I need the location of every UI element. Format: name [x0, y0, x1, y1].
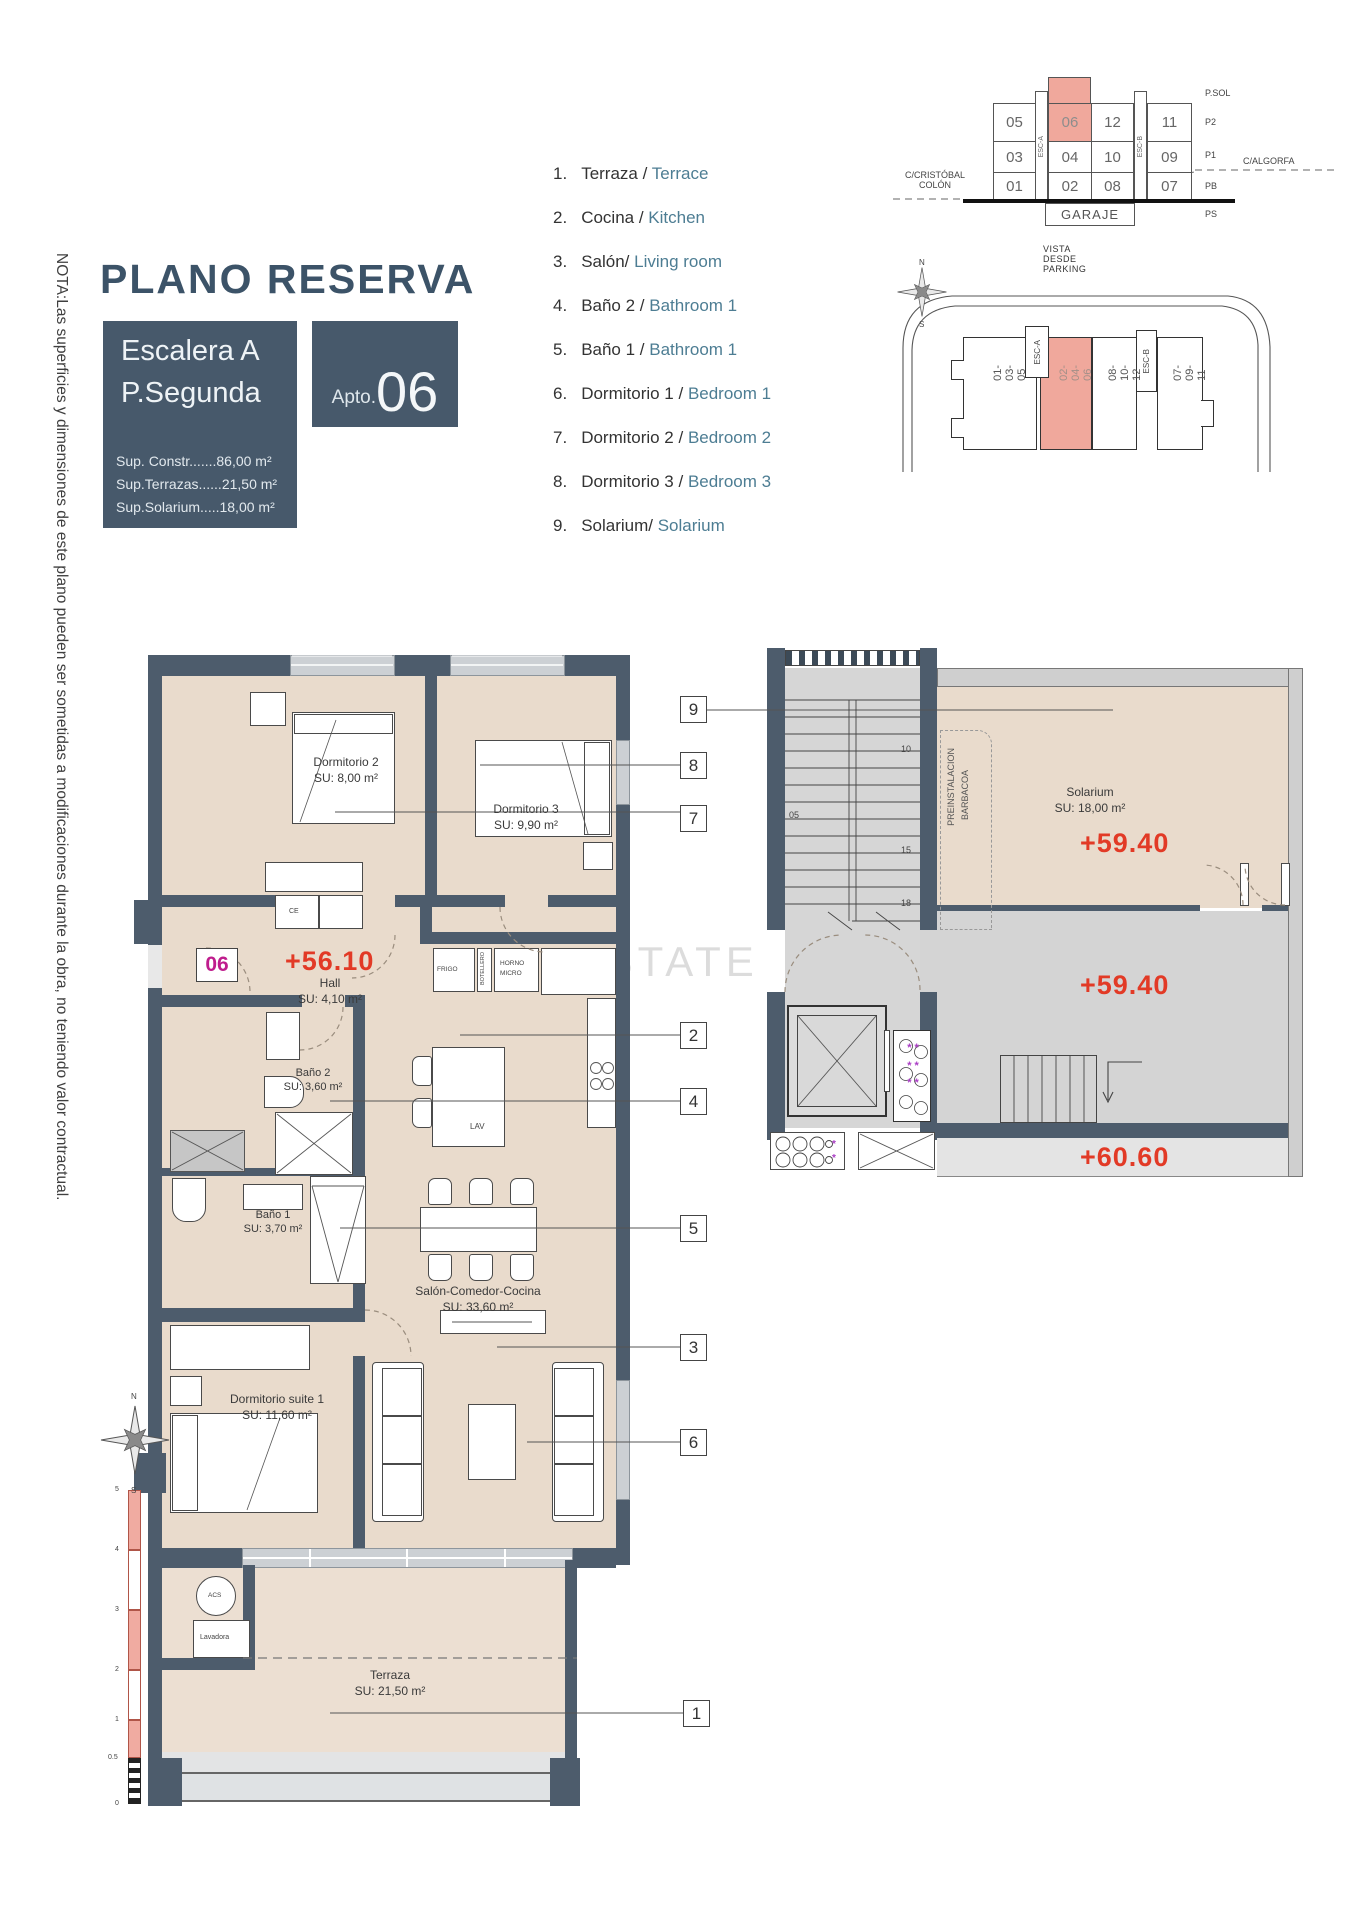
scale-05: 0.5: [108, 1754, 118, 1761]
unit-08: 08: [1091, 172, 1134, 201]
legend-es: Dormitorio 1 /: [581, 384, 688, 403]
window-mullions: [243, 656, 572, 1567]
scale-3: 3: [115, 1606, 119, 1613]
compass-margin: [101, 1406, 169, 1474]
level-upper: +60.60: [1080, 1142, 1169, 1173]
legend-item-9: 9.Solarium/ Solarium: [553, 516, 725, 536]
room-name: Dormitorio 2: [313, 755, 378, 769]
street-cristobal: C/CRISTÓBAL COLÓN: [895, 170, 975, 190]
legend-num: 7.: [553, 428, 567, 447]
level-main: +56.10: [285, 946, 374, 977]
garaje-cell: GARAJE: [1045, 203, 1135, 226]
lavadora-label: Lavadora: [200, 1634, 229, 1641]
scale-5: 5: [115, 1486, 119, 1493]
legend-num: 1.: [553, 164, 567, 183]
label-bano2: Baño 2 SU: 3,60 m²: [268, 1066, 358, 1095]
legend-item-2: 2.Cocina / Kitchen: [553, 208, 705, 228]
legend-num: 9.: [553, 516, 567, 535]
legend-num: 8.: [553, 472, 567, 491]
legend-item-4: 4.Baño 2 / Bathroom 1: [553, 296, 737, 316]
scale-4: 4: [115, 1546, 119, 1553]
section-esc-b: ESC-B: [1134, 91, 1147, 203]
apartment-badge: 06: [196, 948, 238, 982]
legend-es: Salón/: [581, 252, 634, 271]
scale-2: 2: [115, 1666, 119, 1673]
legend-num: 2.: [553, 208, 567, 227]
legend-es: Terraza /: [581, 164, 652, 183]
esc-a-label: ESC-A: [1038, 136, 1045, 157]
room-name: Baño 2: [296, 1067, 331, 1079]
scale-seg: [128, 1670, 141, 1720]
label-solarium: Solarium SU: 18,00 m²: [1030, 785, 1150, 816]
level-p2: P2: [1205, 117, 1216, 127]
unit-01: 01: [993, 172, 1036, 201]
level-p1: P1: [1205, 150, 1216, 160]
legend-en: Bathroom 1: [649, 296, 737, 315]
room-name: Dormitorio 3: [493, 802, 558, 816]
room-area: SU: 8,00 m²: [314, 771, 378, 785]
section-esc-a: ESC-A: [1035, 91, 1048, 203]
ce-label: CE: [289, 908, 299, 915]
room-name: Dormitorio suite 1: [230, 1392, 324, 1406]
site-label-020406: 02-04-06: [1058, 365, 1094, 381]
room-area: SU: 9,90 m²: [494, 818, 558, 832]
room-area: SU: 3,70 m²: [244, 1223, 303, 1235]
street-algorfa: C/ALGORFA: [1243, 156, 1295, 166]
room-name: Hall: [320, 976, 341, 990]
level-solarium: +59.40: [1080, 828, 1169, 859]
label-dorm3: Dormitorio 3 SU: 9,90 m²: [466, 802, 586, 833]
callout-3: 3: [680, 1334, 707, 1361]
callout-2: 2: [680, 1022, 707, 1049]
site-label-070911: 07-09-11: [1172, 365, 1208, 381]
door-arcs: [206, 865, 1285, 1356]
callout-6: 6: [680, 1429, 707, 1456]
legend-es: Cocina /: [581, 208, 648, 227]
level-psol: P.SOL: [1205, 88, 1230, 98]
legend-item-8: 8.Dormitorio 3 / Bedroom 3: [553, 472, 771, 492]
stair-num-10: 10: [901, 744, 911, 754]
site-esc-a-label: ESC-A: [1033, 340, 1042, 364]
legend-en: Bathroom 1: [649, 340, 737, 359]
legend-item-6: 6.Dormitorio 1 / Bedroom 1: [553, 384, 771, 404]
label-suite: Dormitorio suite 1 SU: 11,60 m²: [207, 1392, 347, 1423]
legend-es: Baño 2 /: [581, 296, 649, 315]
site-block-010305-notch: [951, 360, 964, 380]
scale-seg: [128, 1550, 141, 1610]
closet-triangle-lines: [312, 1186, 364, 1282]
surface-terrazas: Sup.Terrazas......21,50 m²: [116, 476, 277, 492]
apto-block: Apto. 06: [312, 321, 458, 427]
scale-seg: [128, 1720, 141, 1758]
legend-es: Baño 1 /: [581, 340, 649, 359]
callout-9: 9: [680, 696, 707, 723]
unit-06: 06: [1048, 103, 1092, 142]
site-esc-a: ESC-A: [1025, 326, 1049, 378]
room-area: SU: 4,10 m²: [298, 992, 362, 1006]
callout-7: 7: [680, 805, 707, 832]
stair-treads: [785, 700, 920, 930]
escalera-label: Escalera A: [121, 335, 260, 368]
callout-1: 1: [683, 1700, 710, 1727]
legend-es: Dormitorio 3 /: [581, 472, 688, 491]
installation-stars: * ** ** *: [896, 1040, 930, 1093]
legend-es: Dormitorio 2 /: [581, 428, 688, 447]
site-block-081012: [1092, 337, 1137, 450]
acs-label: ACS: [208, 1592, 221, 1599]
legend-en: Bedroom 3: [688, 472, 771, 491]
unit-11: 11: [1147, 103, 1192, 142]
section-psol-highlight: [1048, 77, 1091, 104]
horno-label1: HORNO: [500, 960, 524, 967]
level-pb: PB: [1205, 181, 1217, 191]
unit-04: 04: [1048, 141, 1092, 173]
callout-lines: [330, 710, 1113, 1713]
apto-prefix: Apto.: [332, 387, 376, 409]
room-name: Terraza: [370, 1668, 410, 1682]
stair-num-05: 05: [789, 810, 799, 820]
margin-note: NOTA:Las superficies y dimensiones de es…: [52, 253, 70, 1343]
label-dorm2: Dormitorio 2 SU: 8,00 m²: [286, 755, 406, 786]
scale-0: 0: [115, 1800, 119, 1807]
compass-margin-s: S: [131, 1486, 136, 1495]
street-cristobal-l1: C/CRISTÓBAL: [905, 170, 965, 180]
street-cristobal-l2: COLÓN: [919, 180, 951, 190]
unit-12: 12: [1091, 103, 1134, 142]
room-name: Baño 1: [256, 1209, 291, 1221]
esc-b-label: ESC-B: [1137, 136, 1144, 157]
label-hall: Hall SU: 4,10 m²: [270, 976, 390, 1007]
planta-label: P.Segunda: [121, 377, 261, 410]
site-block-070911-notch: [1201, 400, 1214, 427]
label-bano1: Baño 1 SU: 3,70 m²: [230, 1208, 316, 1237]
room-name: Salón-Comedor-Cocina: [415, 1284, 540, 1298]
barbacoa-label1: PREINSTALACION: [946, 748, 956, 826]
room-area: SU: 3,60 m²: [284, 1081, 343, 1093]
legend-item-3: 3.Salón/ Living room: [553, 252, 722, 272]
site-label-081012: 08-10-12: [1107, 365, 1143, 381]
stair-direction-arrow: [1103, 1062, 1142, 1102]
legend-item-7: 7.Dormitorio 2 / Bedroom 2: [553, 428, 771, 448]
legend-num: 3.: [553, 252, 567, 271]
compass-site-n: N: [919, 258, 925, 267]
legend-en: Terrace: [652, 164, 709, 183]
plano-reserva-page: - ESTATE SPA PLANO RESERVA Escalera A P.…: [0, 0, 1356, 1920]
scale-1: 1: [115, 1716, 119, 1723]
frigo-label: FRIGO: [437, 966, 458, 973]
legend-num: 4.: [553, 296, 567, 315]
compass-margin-n: N: [131, 1392, 137, 1401]
surface-solarium: Sup.Solarium.....18,00 m²: [116, 499, 275, 515]
unit-07: 07: [1147, 172, 1192, 201]
site-block-010305-notch2: [951, 418, 964, 438]
site-esc-b: ESC-B: [1136, 330, 1157, 392]
apto-number: 06: [376, 367, 438, 417]
stair-num-18: 18: [901, 898, 911, 908]
legend-num: 5.: [553, 340, 567, 359]
unit-02: 02: [1048, 172, 1092, 201]
hob-stars: **: [832, 1138, 836, 1166]
room-area: SU: 33,60 m²: [443, 1300, 514, 1314]
legend-en: Bedroom 2: [688, 428, 771, 447]
legend-item-1: 1.Terraza / Terrace: [553, 164, 708, 184]
scale-seg: [128, 1610, 141, 1670]
site-esc-b-label: ESC-B: [1142, 349, 1151, 373]
legend-en: Kitchen: [648, 208, 705, 227]
callout-4: 4: [680, 1088, 707, 1115]
room-area: SU: 11,60 m²: [242, 1408, 312, 1422]
unit-09: 09: [1147, 141, 1192, 173]
site-label-010305: 01-03-05: [992, 365, 1028, 381]
legend-item-5: 5.Baño 1 / Bathroom 1: [553, 340, 737, 360]
level-landing: +59.40: [1080, 970, 1169, 1001]
legend-en: Bedroom 1: [688, 384, 771, 403]
site-block-070911: [1157, 337, 1203, 450]
cooktop-circles: [776, 1137, 833, 1167]
callout-5: 5: [680, 1215, 707, 1242]
title-block: Escalera A P.Segunda Sup. Constr.......8…: [103, 321, 297, 528]
page-title: PLANO RESERVA: [100, 256, 475, 303]
section-caption: VISTA DESDE PARKING: [1043, 244, 1086, 274]
surface-constr: Sup. Constr.......86,00 m²: [116, 453, 272, 469]
barbacoa-label2: BARBACOA: [960, 770, 970, 820]
lav-label: LAV: [470, 1122, 485, 1131]
scale-seg-grid: [128, 1758, 141, 1804]
level-ps: PS: [1205, 209, 1217, 219]
legend-en: Solarium: [658, 516, 725, 535]
legend-es: Solarium/: [581, 516, 658, 535]
room-area: SU: 21,50 m²: [355, 1684, 426, 1698]
unit-10: 10: [1091, 141, 1134, 173]
room-area: SU: 18,00 m²: [1055, 801, 1126, 815]
unit-05: 05: [993, 103, 1036, 142]
horno-label2: MICRO: [500, 970, 522, 977]
room-name: Solarium: [1066, 785, 1113, 799]
stair-num-15: 15: [901, 845, 911, 855]
label-terraza: Terraza SU: 21,50 m²: [330, 1668, 450, 1699]
scale-seg: [128, 1490, 141, 1550]
unit-03: 03: [993, 141, 1036, 173]
label-salon: Salón-Comedor-Cocina SU: 33,60 m²: [398, 1284, 558, 1315]
compass-site-s: S: [919, 320, 924, 329]
botellero-label: BOTELLERO: [480, 952, 486, 985]
legend-num: 6.: [553, 384, 567, 403]
hob-circles: [591, 1063, 614, 1090]
legend-en: Living room: [634, 252, 722, 271]
callout-8: 8: [680, 752, 707, 779]
landing-stair-treads: [1014, 1056, 1084, 1122]
